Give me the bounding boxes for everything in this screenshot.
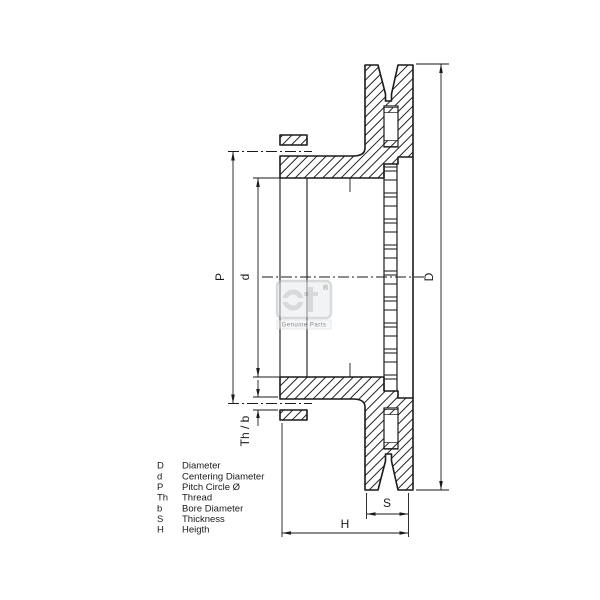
label-D: D [422,272,436,281]
label-P: P [213,273,227,281]
dt-logo-d-slot [282,298,304,302]
label-Th-b: Th / b [238,415,252,446]
legend-symbol: P [157,482,163,493]
legend-symbol: b [157,503,162,514]
vent-slot-rungs [384,166,397,386]
top-flange-strip [280,135,307,145]
legend-label: Centering Diameter [182,471,264,482]
legend-symbol: Th [157,493,168,504]
dt-logo-registered: ® [323,284,329,292]
dt-caption-text: Genuine Parts [282,323,327,329]
label-d: d [238,274,252,281]
dt-watermark: ® Genuine Parts [277,281,331,329]
legend-label: Bore Diameter [182,503,243,514]
bottom-flange-strip [280,410,307,420]
legend-symbol: d [157,471,162,482]
legend-symbol: S [157,514,163,525]
legend-label: Heigth [182,525,209,536]
brake-disc-drawing: ® Genuine Parts [0,0,600,600]
vent-window-top-lower-sliver [384,141,398,147]
legend-label: Thread [182,493,212,504]
vent-window-bottom-lower-sliver [384,443,398,449]
label-H: H [341,517,350,531]
legend-label: Thickness [182,514,225,525]
vent-window-bottom-upper-sliver [384,410,398,415]
legend-label: Diameter [182,461,221,472]
legend-symbol: D [157,461,164,472]
dt-logo-t-stem [308,287,313,312]
vent-window-top-upper-sliver [384,108,398,113]
technical-drawing-page: ® Genuine Parts [0,0,600,600]
legend-label: Pitch Circle Ø [182,482,241,493]
dt-logo-t-bar [304,292,318,296]
legend-symbol: H [157,525,164,536]
label-S: S [383,496,391,510]
